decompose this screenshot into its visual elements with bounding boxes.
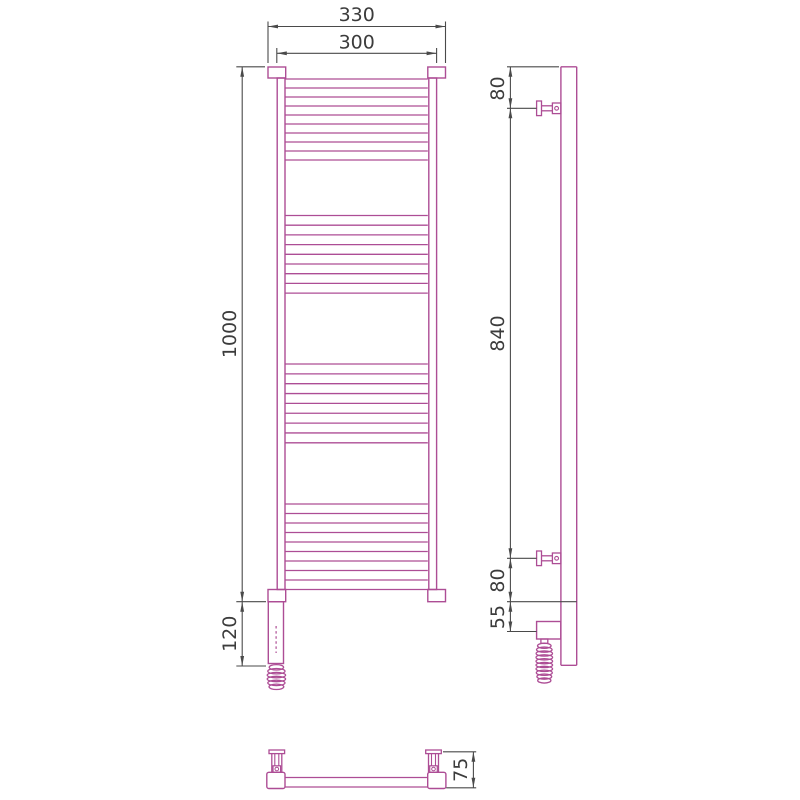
dimension-label: 80: [487, 568, 509, 592]
bottom-view: 75: [267, 750, 476, 789]
dim-bracket-bottom-offset: 80: [487, 558, 512, 601]
bracket-screw: [275, 767, 279, 771]
dimension-arrow: [509, 622, 513, 632]
dimension-arrow: [509, 67, 513, 77]
dim-depth: 75: [443, 752, 476, 788]
bracket-wall-flange: [537, 551, 542, 566]
dimension-arrow: [277, 51, 287, 55]
dimension-arrow: [472, 752, 476, 762]
dimension-arrow: [472, 778, 476, 788]
bracket-wall-flange: [269, 750, 285, 754]
side-heater-box: [537, 622, 561, 640]
dimension-arrow: [240, 602, 244, 612]
bracket-clamp: [552, 103, 561, 114]
dimension-arrow: [509, 592, 513, 602]
bracket-screw: [555, 106, 559, 110]
bracket-wall-flange: [426, 750, 442, 754]
front-bar-group-2: [285, 216, 428, 294]
side-view: 808408055: [487, 67, 577, 683]
dimension-arrow: [509, 602, 513, 612]
bracket-wall-flange: [537, 101, 542, 116]
dimension-arrow: [240, 656, 244, 666]
bottom-right-bracket: [426, 750, 442, 772]
front-view: 3303001000120: [219, 4, 446, 690]
side-upper-bracket: [537, 101, 561, 116]
dim-height-bottom: 120: [219, 602, 266, 666]
dimension-arrow: [240, 67, 244, 77]
front-bar-group-3: [285, 364, 428, 443]
dimension-label: 300: [339, 32, 375, 54]
bottom-left-bracket: [269, 750, 285, 772]
dimension-arrow: [436, 25, 446, 29]
front-top-collar-right: [428, 67, 446, 78]
front-bottom-collar-left: [268, 590, 286, 602]
front-left-rail: [277, 78, 285, 590]
dimension-arrow: [427, 51, 437, 55]
dimension-arrow: [509, 108, 513, 118]
dim-height-main: 1000: [219, 67, 266, 602]
dimension-label: 80: [487, 76, 509, 100]
side-lower-bracket: [537, 551, 561, 566]
bracket-screw: [555, 556, 559, 560]
dim-bracket-top-offset: 80: [487, 67, 512, 109]
bottom-right-block: [428, 772, 446, 788]
dimension-label: 840: [487, 315, 509, 351]
bracket-screw: [432, 767, 436, 771]
dim-heater-axis-offset: 55: [487, 602, 512, 632]
bracket-clamp: [552, 553, 561, 564]
front-bar-group-1: [285, 79, 428, 160]
front-top-collar-left: [268, 67, 286, 78]
front-bar-group-4: [285, 504, 428, 590]
bottom-left-block: [267, 772, 285, 788]
dimension-arrow: [268, 25, 278, 29]
dimension-label: 120: [219, 616, 241, 652]
technical-drawing: 330300100012080840805575: [0, 0, 800, 800]
dimension-arrow: [509, 98, 513, 108]
cable-coil-loop: [269, 684, 284, 689]
dimension-label: 1000: [219, 310, 241, 358]
front-right-rail: [429, 78, 437, 590]
dim-width-rails: 300: [277, 32, 437, 64]
dimension-label: 330: [339, 4, 375, 26]
dimension-arrow: [509, 548, 513, 558]
dimension-arrow: [509, 558, 513, 568]
dimension-arrow: [240, 592, 244, 602]
dim-bracket-span: 840: [487, 108, 512, 558]
dimension-label: 75: [450, 758, 472, 782]
drawing-canvas: 330300100012080840805575: [0, 0, 800, 800]
dimension-label: 55: [487, 605, 509, 629]
front-bottom-collar-right: [428, 590, 446, 602]
